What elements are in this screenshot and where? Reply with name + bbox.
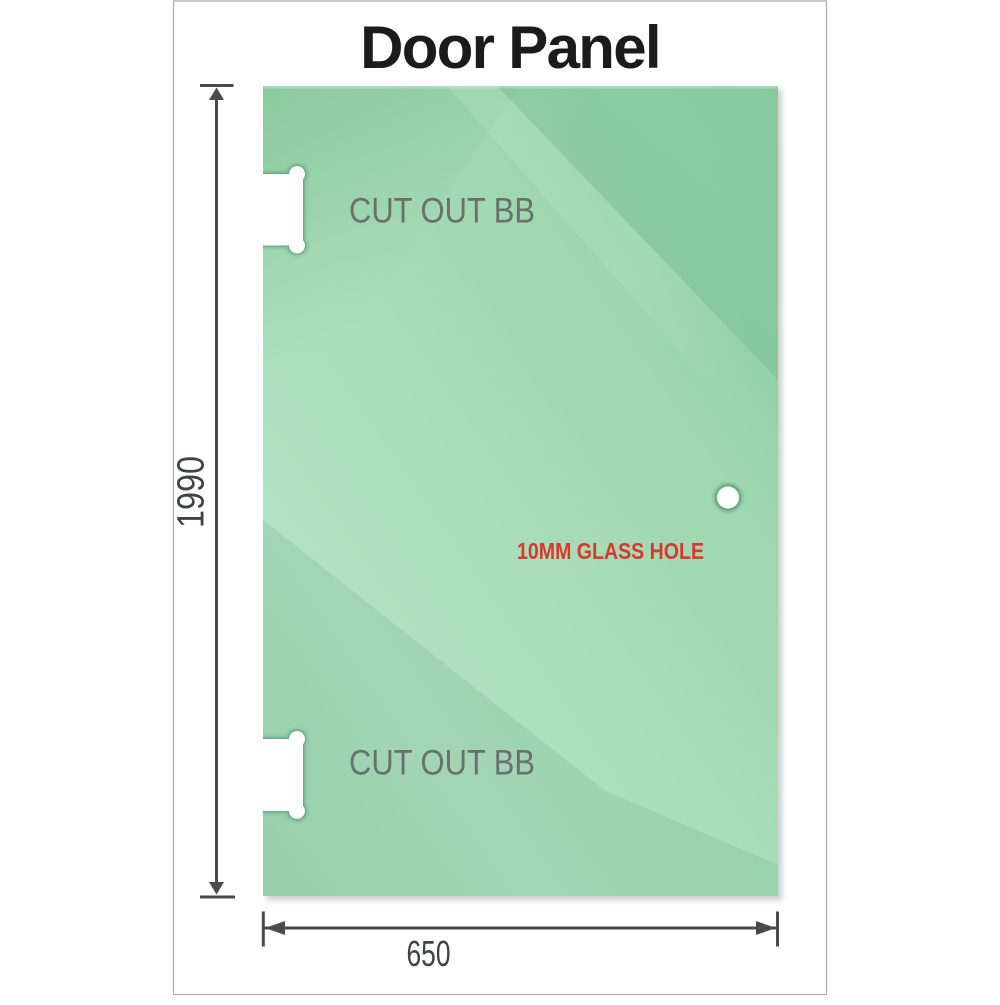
svg-text:CUT OUT BB: CUT OUT BB: [349, 744, 535, 783]
svg-text:Door Panel: Door Panel: [360, 14, 660, 81]
svg-text:650: 650: [407, 933, 451, 974]
svg-text:10MM GLASS HOLE: 10MM GLASS HOLE: [517, 538, 704, 564]
svg-text:CUT OUT BB: CUT OUT BB: [349, 192, 535, 231]
svg-text:1990: 1990: [171, 456, 213, 528]
